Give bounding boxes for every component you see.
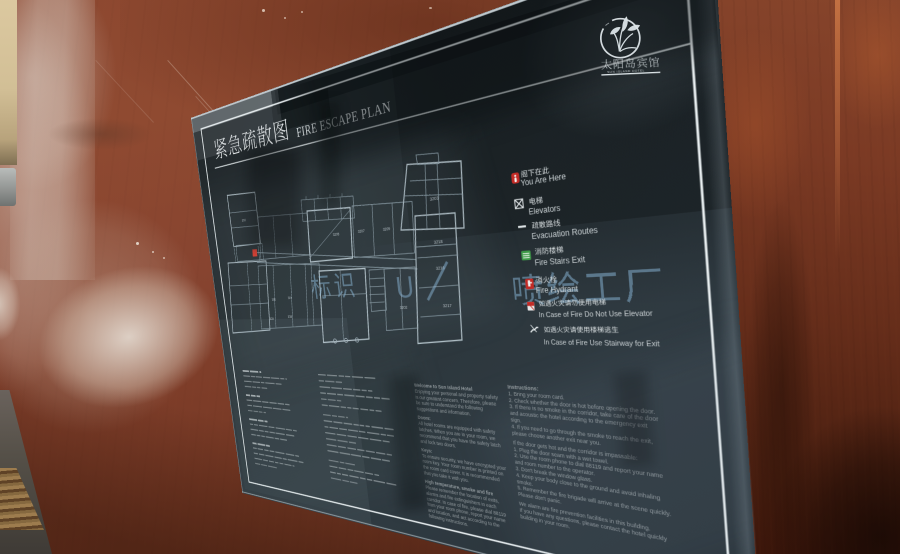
svg-text:3217: 3217 (442, 302, 452, 309)
svg-text:Fire Hydrant: Fire Hydrant (535, 284, 579, 295)
svg-text:U: U (394, 271, 415, 305)
svg-text:In Case of Fire Do Not Use Ele: In Case of Fire Do Not Use Elevator (539, 310, 655, 319)
svg-text:3203: 3203 (429, 195, 439, 203)
svg-text:3218: 3218 (433, 238, 443, 245)
